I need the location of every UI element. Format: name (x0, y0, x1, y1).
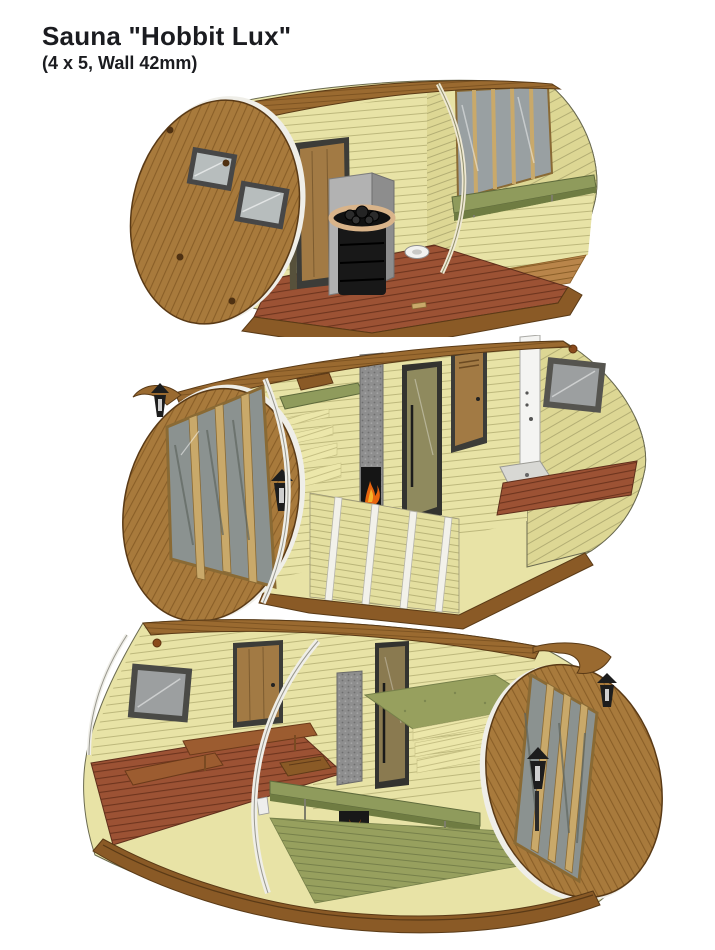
relax-room-window (131, 667, 189, 720)
porthole-window-upper (190, 150, 235, 188)
washroom-window (546, 360, 602, 409)
shower-column (520, 335, 540, 467)
deck-bracket (257, 797, 269, 815)
sauna-render-top (122, 75, 637, 337)
knot (223, 160, 230, 167)
sauna-render-bottom (65, 613, 665, 940)
knot (177, 254, 184, 261)
sauna-heater (331, 206, 393, 295)
page-title: Sauna "Hobbit Lux" (42, 22, 291, 51)
header: Sauna "Hobbit Lux" (4 x 5, Wall 42mm) (42, 22, 291, 74)
sauna-glass-door (402, 361, 442, 525)
chimney (337, 671, 362, 785)
sink-bowl (405, 246, 429, 259)
sauna-render-middle (115, 335, 665, 630)
knot (229, 298, 236, 305)
product-sheet: Sauna "Hobbit Lux" (4 x 5, Wall 42mm) (0, 0, 715, 950)
washroom-door (451, 347, 487, 453)
porthole-window-lower (237, 183, 287, 226)
sauna-render-top-drawing (122, 75, 637, 337)
sauna-render-bottom-drawing (65, 613, 665, 940)
fireplace (361, 467, 381, 507)
sauna-render-middle-drawing (115, 335, 665, 630)
knot (167, 127, 174, 134)
knot (153, 639, 161, 647)
page-subtitle: (4 x 5, Wall 42mm) (42, 53, 291, 74)
